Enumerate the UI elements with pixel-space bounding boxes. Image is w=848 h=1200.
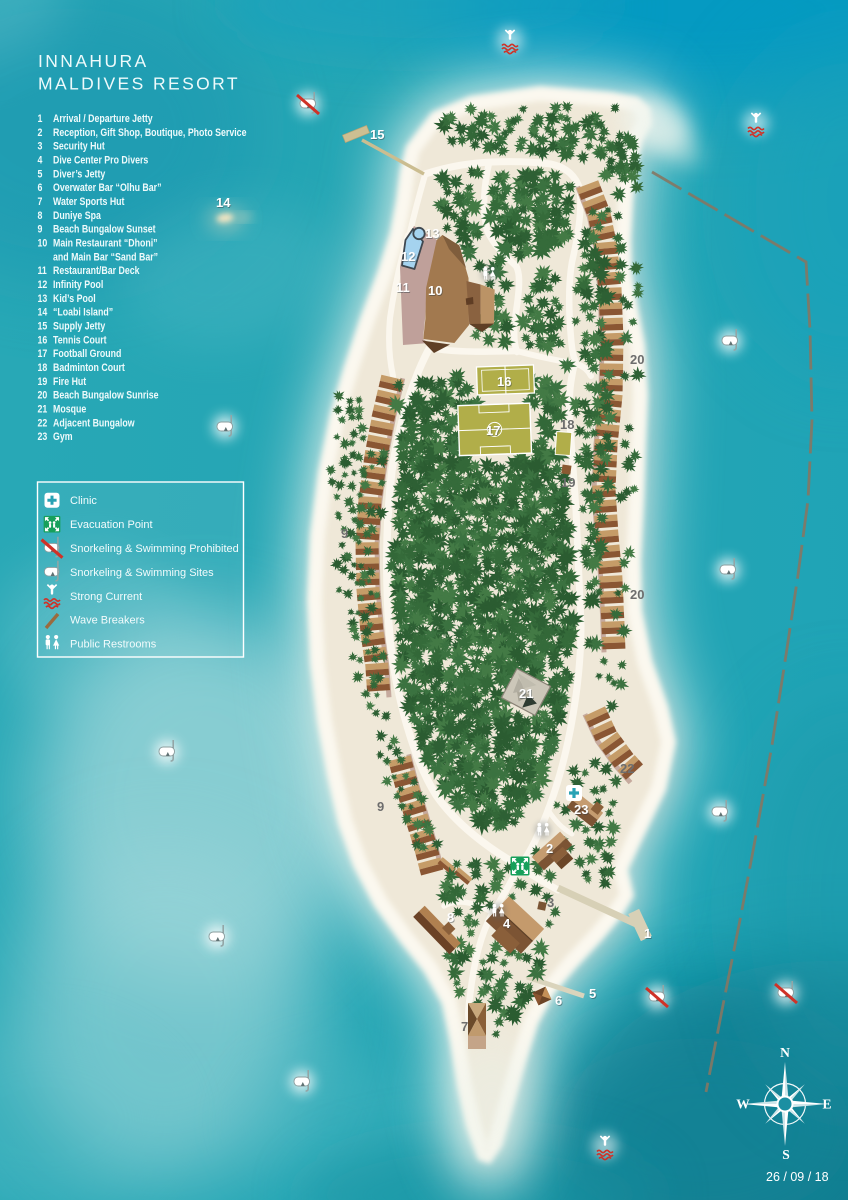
svg-text:11: 11 xyxy=(38,265,48,277)
svg-text:W: W xyxy=(736,1097,750,1112)
svg-text:1: 1 xyxy=(644,926,651,941)
svg-text:20: 20 xyxy=(630,352,644,367)
svg-text:4: 4 xyxy=(503,916,511,931)
svg-text:8: 8 xyxy=(38,210,43,222)
svg-text:15: 15 xyxy=(370,127,384,142)
svg-text:7: 7 xyxy=(461,1019,468,1034)
svg-text:Snorkeling & Swimming Sites: Snorkeling & Swimming Sites xyxy=(70,567,214,579)
svg-text:Diver’s Jetty: Diver’s Jetty xyxy=(53,168,106,180)
svg-text:13: 13 xyxy=(38,293,48,305)
svg-text:3: 3 xyxy=(38,141,43,153)
svg-text:Supply Jetty: Supply Jetty xyxy=(53,321,106,333)
svg-text:22: 22 xyxy=(620,761,634,776)
svg-text:8: 8 xyxy=(447,910,454,925)
svg-text:20: 20 xyxy=(630,587,644,602)
svg-text:16: 16 xyxy=(38,334,48,346)
svg-text:MALDIVES RESORT: MALDIVES RESORT xyxy=(38,74,240,94)
svg-text:Arrival / Departure Jetty: Arrival / Departure Jetty xyxy=(53,113,153,125)
svg-text:S: S xyxy=(782,1147,790,1162)
svg-text:5: 5 xyxy=(589,986,596,1001)
svg-text:Football Ground: Football Ground xyxy=(53,348,121,360)
svg-text:16: 16 xyxy=(497,374,511,389)
svg-text:5: 5 xyxy=(38,168,43,180)
svg-text:18: 18 xyxy=(38,362,48,374)
svg-text:Badminton Court: Badminton Court xyxy=(53,362,125,374)
svg-text:10: 10 xyxy=(38,238,48,250)
svg-text:26 / 09 / 18: 26 / 09 / 18 xyxy=(766,1170,829,1184)
svg-text:Dive Center Pro Divers: Dive Center Pro Divers xyxy=(53,155,149,167)
svg-text:Strong Current: Strong Current xyxy=(70,591,142,603)
svg-text:Adjacent Bungalow: Adjacent Bungalow xyxy=(53,417,135,429)
svg-text:Clinic: Clinic xyxy=(70,495,97,507)
svg-text:21: 21 xyxy=(38,404,48,416)
svg-text:Duniye Spa: Duniye Spa xyxy=(53,210,101,222)
svg-text:Overwater Bar “Olhu Bar”: Overwater Bar “Olhu Bar” xyxy=(53,182,162,194)
svg-text:Main Restaurant “Dhoni”: Main Restaurant “Dhoni” xyxy=(53,238,158,250)
svg-text:N: N xyxy=(780,1045,790,1060)
svg-text:17: 17 xyxy=(486,423,500,438)
svg-text:Tennis Court: Tennis Court xyxy=(53,334,107,346)
svg-text:and Main Bar “Sand Bar”: and Main Bar “Sand Bar” xyxy=(53,251,158,263)
svg-text:23: 23 xyxy=(574,802,588,817)
svg-text:13: 13 xyxy=(425,226,439,241)
svg-text:Evacuation Point: Evacuation Point xyxy=(70,519,153,531)
svg-text:Fire Hut: Fire Hut xyxy=(53,376,87,388)
svg-text:9: 9 xyxy=(38,224,43,236)
svg-text:19: 19 xyxy=(561,475,575,490)
svg-text:E: E xyxy=(822,1097,831,1112)
svg-text:Kid’s Pool: Kid’s Pool xyxy=(53,293,96,305)
svg-text:14: 14 xyxy=(38,307,48,319)
svg-text:17: 17 xyxy=(38,348,48,360)
svg-text:1: 1 xyxy=(38,113,43,125)
svg-text:INNAHURA: INNAHURA xyxy=(38,51,149,71)
svg-text:12: 12 xyxy=(401,249,415,264)
svg-text:4: 4 xyxy=(38,155,43,167)
svg-text:Water Sports Hut: Water Sports Hut xyxy=(53,196,125,208)
svg-text:20: 20 xyxy=(38,390,48,402)
svg-text:9: 9 xyxy=(377,799,384,814)
svg-text:18: 18 xyxy=(560,417,574,432)
svg-text:Restaurant/Bar Deck: Restaurant/Bar Deck xyxy=(53,265,140,277)
svg-text:22: 22 xyxy=(38,417,48,429)
svg-text:10: 10 xyxy=(428,283,442,298)
svg-text:Wave Breakers: Wave Breakers xyxy=(70,615,145,627)
svg-text:“Loabi Island”: “Loabi Island” xyxy=(53,307,113,319)
svg-text:Public Restrooms: Public Restrooms xyxy=(70,639,157,651)
svg-text:19: 19 xyxy=(38,376,48,388)
svg-text:14: 14 xyxy=(216,195,231,210)
svg-text:11: 11 xyxy=(396,280,410,295)
svg-text:9: 9 xyxy=(341,526,348,541)
svg-text:3: 3 xyxy=(547,895,554,910)
svg-text:23: 23 xyxy=(38,431,48,443)
svg-text:6: 6 xyxy=(38,182,43,194)
svg-text:Security Hut: Security Hut xyxy=(53,141,105,153)
svg-text:Mosque: Mosque xyxy=(53,404,87,416)
svg-text:Beach Bungalow Sunrise: Beach Bungalow Sunrise xyxy=(53,390,159,402)
svg-text:21: 21 xyxy=(519,686,533,701)
svg-text:2: 2 xyxy=(38,127,43,139)
svg-text:12: 12 xyxy=(38,279,48,291)
svg-text:Reception, Gift Shop, Boutique: Reception, Gift Shop, Boutique, Photo Se… xyxy=(53,127,247,139)
svg-text:Beach Bungalow Sunset: Beach Bungalow Sunset xyxy=(53,224,156,236)
svg-text:7: 7 xyxy=(38,196,43,208)
svg-text:Snorkeling & Swimming Prohibit: Snorkeling & Swimming Prohibited xyxy=(70,543,239,555)
svg-text:15: 15 xyxy=(38,321,48,333)
svg-text:Gym: Gym xyxy=(53,431,73,443)
svg-text:6: 6 xyxy=(555,993,562,1008)
svg-text:Infinity Pool: Infinity Pool xyxy=(53,279,104,291)
svg-text:2: 2 xyxy=(546,841,553,856)
